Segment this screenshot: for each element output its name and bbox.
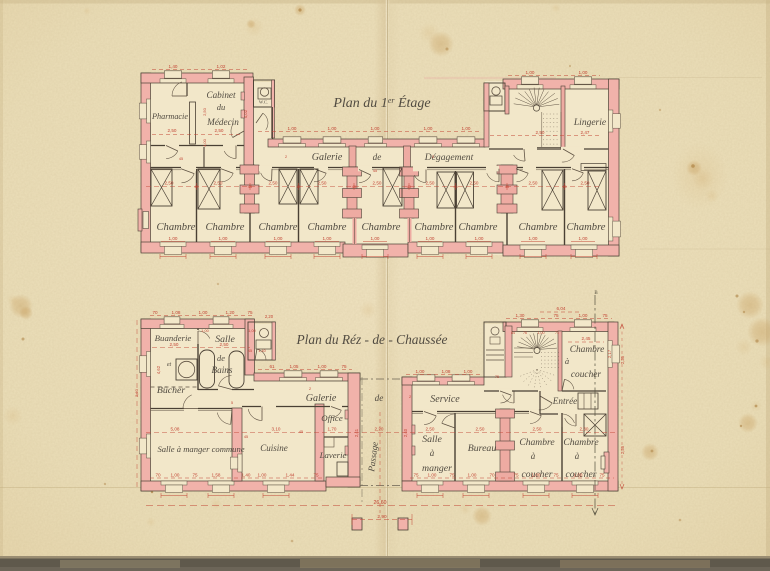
svg-text:1,00: 1,00	[464, 369, 473, 374]
svg-text:1,44: 1,44	[286, 473, 295, 478]
svg-text:1,00: 1,00	[426, 236, 435, 241]
svg-text:75: 75	[553, 473, 559, 478]
svg-text:Lingerie: Lingerie	[573, 118, 606, 128]
svg-text:Chambre: Chambre	[518, 222, 557, 233]
svg-text:75: 75	[553, 313, 559, 318]
svg-text:76: 76	[523, 331, 527, 335]
svg-text:70: 70	[152, 310, 158, 315]
svg-text:Plan du Réz - de - Chaussée: Plan du Réz - de - Chaussée	[296, 332, 448, 347]
svg-text:1,05: 1,05	[290, 364, 299, 369]
svg-text:1,00: 1,00	[538, 331, 545, 335]
svg-text:4,00: 4,00	[202, 138, 207, 147]
svg-text:1,00: 1,00	[258, 473, 267, 478]
svg-text:1,00: 1,00	[199, 310, 208, 315]
svg-text:4,62: 4,62	[156, 365, 161, 374]
svg-text:75: 75	[192, 473, 198, 478]
svg-text:1,00: 1,00	[424, 126, 433, 131]
svg-text:2,50: 2,50	[476, 427, 485, 432]
svg-text:Bains: Bains	[212, 365, 233, 375]
svg-text:2,50: 2,50	[536, 130, 545, 135]
svg-text:Galerie: Galerie	[312, 152, 343, 163]
svg-text:75: 75	[413, 473, 419, 478]
svg-text:1,00: 1,00	[219, 236, 228, 241]
svg-text:2,30: 2,30	[580, 427, 589, 432]
svg-text:1,70: 1,70	[328, 427, 337, 432]
svg-text:1,00: 1,00	[529, 236, 538, 241]
svg-text:à: à	[575, 451, 580, 461]
svg-text:1,00: 1,00	[532, 473, 541, 478]
svg-text:75: 75	[313, 473, 319, 478]
svg-text:3,10: 3,10	[272, 427, 281, 432]
svg-text:1,00: 1,00	[475, 236, 484, 241]
svg-text:de: de	[373, 152, 382, 162]
svg-text:75: 75	[247, 310, 253, 315]
svg-text:1,00: 1,00	[462, 126, 471, 131]
svg-text:84: 84	[511, 331, 515, 335]
svg-text:75: 75	[602, 313, 608, 318]
svg-text:1,00: 1,00	[416, 369, 425, 374]
svg-text:45: 45	[179, 157, 183, 161]
svg-text:75: 75	[449, 473, 455, 478]
svg-text:2,50: 2,50	[202, 107, 207, 116]
svg-text:2,45: 2,45	[582, 336, 591, 341]
svg-text:1,02: 1,02	[217, 64, 226, 69]
svg-text:2,60: 2,60	[134, 388, 139, 397]
svg-text:2,50: 2,50	[220, 342, 229, 347]
svg-text:1,30: 1,30	[516, 313, 525, 318]
svg-text:4,02: 4,02	[243, 109, 248, 118]
svg-text:Chambre: Chambre	[307, 222, 346, 233]
svg-text:75: 75	[599, 473, 605, 478]
svg-text:Chambre: Chambre	[458, 222, 497, 233]
svg-text:2: 2	[309, 387, 311, 391]
svg-text:1,00: 1,00	[201, 329, 208, 333]
svg-text:de: de	[217, 354, 225, 363]
svg-text:75: 75	[341, 364, 347, 369]
svg-text:6,04: 6,04	[557, 306, 566, 311]
svg-text:2: 2	[409, 395, 411, 399]
svg-text:75: 75	[513, 473, 519, 478]
svg-text:Entrée: Entrée	[552, 396, 578, 406]
svg-text:1,00: 1,00	[171, 473, 180, 478]
svg-text:75: 75	[495, 375, 499, 379]
svg-text:Plan du 1er Étage: Plan du 1er Étage	[332, 94, 430, 111]
svg-text:Chambre: Chambre	[258, 222, 297, 233]
svg-text:2,50: 2,50	[529, 181, 538, 186]
svg-text:5: 5	[231, 401, 233, 405]
svg-text:1,00: 1,00	[371, 236, 380, 241]
svg-text:1,00: 1,00	[579, 70, 588, 75]
svg-text:Cuisine: Cuisine	[260, 443, 288, 453]
svg-text:Chambre: Chambre	[570, 345, 605, 355]
svg-text:Salle: Salle	[422, 434, 442, 445]
svg-text:2,20: 2,20	[265, 314, 274, 319]
svg-text:2,40: 2,40	[403, 428, 408, 437]
svg-text:70: 70	[489, 473, 495, 478]
svg-text:Chambre: Chambre	[205, 222, 244, 233]
svg-text:1,40: 1,40	[169, 64, 178, 69]
svg-text:Chambre: Chambre	[361, 222, 400, 233]
svg-text:2: 2	[432, 155, 434, 159]
svg-text:à: à	[531, 451, 536, 461]
svg-text:2,50: 2,50	[581, 181, 590, 186]
svg-text:2,41: 2,41	[354, 428, 359, 437]
svg-text:Chambre: Chambre	[156, 222, 195, 233]
svg-text:1,00: 1,00	[468, 473, 477, 478]
svg-text:1,20: 1,20	[226, 310, 235, 315]
svg-text:61: 61	[269, 364, 275, 369]
svg-text:1,00: 1,00	[579, 236, 588, 241]
svg-text:1,00: 1,00	[526, 70, 535, 75]
svg-text:2,50: 2,50	[269, 181, 278, 186]
svg-text:Bureau: Bureau	[468, 443, 497, 454]
svg-text:2,50: 2,50	[318, 181, 327, 186]
svg-text:2,50: 2,50	[215, 128, 224, 133]
svg-text:45: 45	[373, 169, 377, 173]
svg-text:1,00: 1,00	[371, 126, 380, 131]
svg-text:2,35: 2,35	[620, 445, 625, 454]
svg-text:2,35: 2,35	[620, 355, 625, 364]
svg-text:2,50: 2,50	[170, 342, 179, 347]
svg-text:1,00: 1,00	[169, 236, 178, 241]
svg-text:1,08: 1,08	[442, 369, 451, 374]
svg-text:71: 71	[555, 331, 559, 335]
svg-text:2,50: 2,50	[426, 181, 435, 186]
svg-text:1,40: 1,40	[242, 473, 251, 478]
svg-text:2,50: 2,50	[533, 427, 542, 432]
svg-text:45: 45	[299, 430, 303, 434]
svg-text:Chambre: Chambre	[414, 222, 453, 233]
svg-text:2,90: 2,90	[377, 514, 387, 520]
svg-text:1,00: 1,00	[428, 473, 437, 478]
svg-text:Chambre: Chambre	[563, 437, 599, 448]
svg-text:Bûcher: Bûcher	[157, 385, 185, 396]
svg-text:2,50: 2,50	[470, 181, 479, 186]
svg-text:Salle à manger commune: Salle à manger commune	[157, 444, 244, 454]
svg-text:45: 45	[244, 435, 248, 439]
svg-text:1,00: 1,00	[274, 236, 283, 241]
svg-text:et: et	[167, 362, 172, 368]
svg-text:Galerie: Galerie	[306, 393, 337, 404]
svg-text:à: à	[565, 356, 569, 366]
svg-text:2,50: 2,50	[214, 181, 223, 186]
svg-text:Service: Service	[430, 394, 460, 405]
svg-text:2,17: 2,17	[607, 349, 612, 358]
svg-text:1,00: 1,00	[323, 236, 332, 241]
svg-text:1,58: 1,58	[212, 473, 221, 478]
svg-text:coucher: coucher	[571, 370, 602, 380]
svg-text:Médecin: Médecin	[206, 117, 239, 127]
svg-text:26,60: 26,60	[374, 500, 387, 506]
svg-text:Office: Office	[321, 413, 343, 423]
svg-text:2,50: 2,50	[373, 181, 382, 186]
svg-text:1,00: 1,00	[328, 126, 337, 131]
svg-text:Pharmacie: Pharmacie	[151, 112, 188, 121]
svg-text:1,00: 1,00	[248, 329, 255, 333]
svg-text:Laverie: Laverie	[319, 450, 347, 460]
svg-text:2,47: 2,47	[581, 130, 590, 135]
svg-text:2,50: 2,50	[165, 181, 174, 186]
svg-text:Chambre: Chambre	[566, 222, 605, 233]
svg-text:2,20: 2,20	[375, 427, 384, 432]
svg-text:5,08: 5,08	[171, 427, 180, 432]
svg-text:1,00: 1,00	[318, 364, 327, 369]
svg-text:2: 2	[285, 155, 287, 159]
svg-text:du: du	[217, 102, 226, 112]
svg-text:1,00: 1,00	[574, 473, 583, 478]
svg-text:2,50: 2,50	[168, 128, 177, 133]
svg-text:2,50: 2,50	[426, 427, 435, 432]
svg-text:45: 45	[248, 349, 252, 353]
svg-text:Cabinet: Cabinet	[206, 90, 236, 100]
svg-text:Chambre: Chambre	[519, 437, 555, 448]
svg-text:1,40: 1,40	[258, 349, 265, 353]
svg-text:70: 70	[155, 473, 161, 478]
svg-text:1,00: 1,00	[579, 313, 588, 318]
svg-text:1,00: 1,00	[288, 126, 297, 131]
svg-text:W.C.: W.C.	[259, 100, 268, 105]
svg-text:à: à	[430, 448, 435, 458]
svg-text:1,08: 1,08	[172, 310, 181, 315]
svg-text:de: de	[375, 393, 384, 403]
